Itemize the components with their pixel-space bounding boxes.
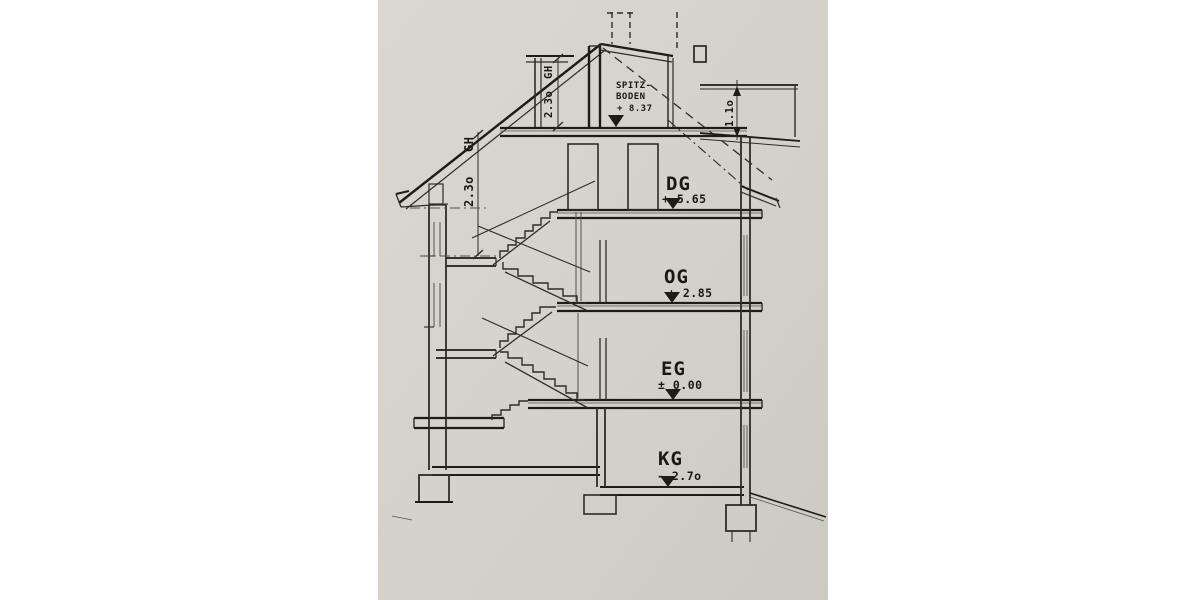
- dormer-height-label: GH: [543, 65, 555, 79]
- spitzboden-label-line2: BODEN: [616, 92, 646, 102]
- building-section-drawing: GH 2.3o GH 2.3o 1.1o SPITZ- BODEN + 8.37…: [0, 0, 1200, 600]
- roof-height-value: 2.3o: [462, 176, 476, 207]
- kg-label: KG: [658, 448, 683, 470]
- eg-label: EG: [661, 358, 686, 380]
- railing-height-value: 1.1o: [724, 100, 736, 127]
- spitzboden-label-line1: SPITZ-: [616, 81, 652, 91]
- dormer-height-value: 2.3o: [543, 91, 555, 118]
- roof-height-label: GH: [462, 137, 476, 152]
- spitzboden-elevation: + 8.37: [617, 104, 653, 114]
- scanned-drawing-page: GH 2.3o GH 2.3o 1.1o SPITZ- BODEN + 8.37…: [0, 0, 1200, 600]
- og-label: OG: [664, 266, 689, 288]
